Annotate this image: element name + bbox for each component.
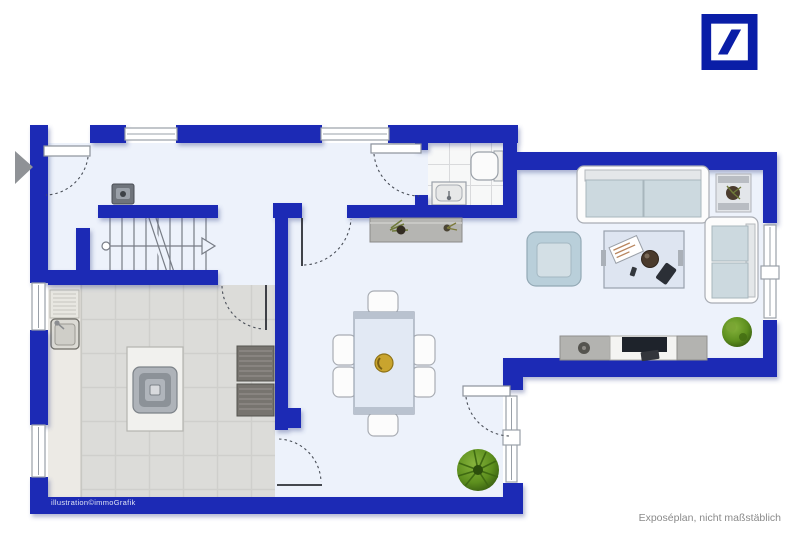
window-left-2 — [32, 425, 45, 477]
bathroom — [428, 143, 503, 205]
deutsche-bank-logo — [701, 14, 758, 70]
corner-plant-icon — [722, 317, 752, 347]
kitchen — [48, 285, 275, 497]
dining-chair — [412, 367, 435, 397]
dining-chair — [333, 335, 356, 365]
bathroom-door-leaf — [371, 144, 421, 153]
tv-icon — [622, 337, 667, 352]
dining-chair — [368, 291, 398, 314]
floorplan-page: { "texts": { "credit": "illustration©imm… — [0, 0, 794, 551]
window-top-2 — [321, 128, 389, 140]
dining-chair — [333, 367, 356, 397]
staircase — [98, 218, 218, 272]
kitchen-sink-unit — [50, 290, 79, 349]
kitchen-island — [127, 347, 183, 431]
illustration-credit: illustration©immoGrafik — [51, 498, 136, 507]
hall-decor-object — [112, 184, 134, 204]
floor-plan — [0, 0, 794, 551]
toilet-icon — [471, 151, 503, 181]
dining-sideboard — [370, 218, 462, 242]
dining-chair — [412, 335, 435, 365]
terrace-door-glazing — [503, 396, 520, 482]
kitchen-appliance-counters — [237, 346, 274, 416]
scale-disclaimer: Exposéplan, nicht maßstäblich — [639, 512, 781, 524]
bathroom-sink-icon — [432, 182, 466, 205]
decor-bowl-icon — [397, 226, 406, 235]
side-table-with-plant — [716, 174, 751, 212]
tv-sideboard — [560, 336, 707, 361]
sofa-large — [577, 166, 709, 223]
slash-icon — [718, 29, 741, 54]
window-living-right — [761, 225, 779, 318]
dining-chair — [368, 413, 398, 436]
coffee-table — [601, 231, 684, 288]
entrance-door-leaf — [44, 146, 90, 156]
armchair — [527, 232, 581, 286]
terrace-door-leaf — [463, 386, 510, 396]
window-left-1 — [32, 283, 45, 330]
bowl-icon — [642, 251, 659, 268]
floor-plant-icon — [457, 449, 499, 491]
window-top-1 — [125, 128, 177, 140]
sofa-small — [705, 217, 758, 303]
